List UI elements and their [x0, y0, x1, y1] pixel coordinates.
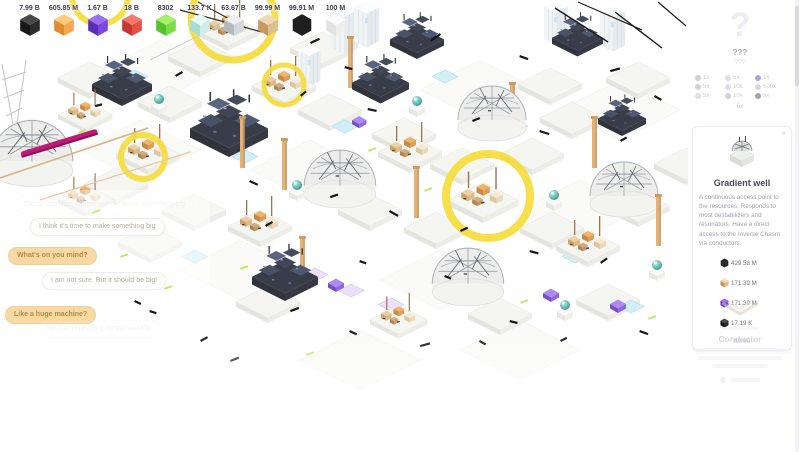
building-title: Gradient well [699, 178, 785, 188]
close-icon[interactable]: × [781, 129, 786, 138]
cost-value: 171.39 M [731, 280, 757, 287]
requirement-value: 1x [703, 75, 709, 81]
black-hexagon-icon [291, 13, 313, 42]
black-hexagon-icon [720, 255, 731, 273]
locked-item-footer: 5x [688, 104, 792, 110]
ghost-text-line [698, 356, 782, 360]
ghost-cost-row [688, 377, 792, 383]
resource-counter-crate-cube: 99.99 M [254, 5, 281, 42]
requirement-value: 5x [703, 84, 709, 90]
resource-bar: 7.99 B 605.85 M 1.67 B 18 B 8302 133.7 K… [16, 5, 349, 42]
requirement-icon [725, 84, 731, 90]
next-item-title: Conductor [688, 334, 792, 344]
red-cube-icon [121, 13, 143, 42]
ghost-text-line [731, 378, 761, 382]
requirement-icon [755, 93, 761, 99]
resource-counter-prism-cube: 133.7 K [186, 5, 213, 42]
requirement-item: 1x [695, 75, 725, 81]
requirement-icon [755, 84, 761, 90]
conductor-icon [718, 300, 762, 318]
requirement-value: 500x [763, 84, 776, 90]
chat-reply-option[interactable]: What's on you mind? [8, 247, 97, 265]
requirement-item: 10x [725, 93, 755, 99]
purple-cube-icon [87, 13, 109, 42]
resource-value: 7.99 B [19, 5, 40, 12]
resource-value: 63.67 B [221, 5, 246, 12]
requirement-icon [725, 75, 731, 81]
ghost-text-line [712, 364, 768, 368]
requirement-value: 5x [703, 93, 709, 99]
chat-bubble-npc: I am not sure. But it should be big! [42, 272, 166, 290]
resource-counter-green-cube: 8302 [152, 5, 179, 42]
requirement-item: 500x [755, 84, 785, 90]
panel-scrollbar[interactable] [795, 0, 799, 452]
black-cube-icon [19, 13, 41, 42]
requirement-icon [695, 93, 701, 99]
resource-value: 18 B [124, 5, 139, 12]
resource-counter-red-cube: 18 B [118, 5, 145, 42]
locked-item-card[interactable]: ? ??? ??? 1x 5x 1x 5x 10x 500x 5x 10x 5x… [688, 8, 792, 110]
cost-item: 429.58 M [720, 255, 764, 273]
locked-item-title: ??? [688, 48, 792, 57]
requirement-value: 5x [733, 75, 739, 81]
requirement-value: 10x [733, 93, 743, 99]
requirement-value: 1x [763, 75, 769, 81]
resource-value: 99.99 M [255, 5, 280, 12]
requirement-icon [695, 84, 701, 90]
build-side-panel: ? ??? ??? 1x 5x 1x 5x 10x 500x 5x 10x 5x… [688, 0, 800, 452]
resource-counter-orange-cube: 605.85 M [50, 5, 77, 42]
cost-value: 429.58 M [731, 260, 757, 267]
tan-cube-icon [720, 275, 731, 293]
requirement-item: 5x [695, 93, 725, 99]
resource-counter-purple-cube: 1.67 B [84, 5, 111, 42]
resource-value: 99.91 M [289, 5, 314, 12]
locked-item-subtitle: ??? [688, 60, 792, 66]
prism-cube-icon [189, 13, 211, 42]
scrollbar-thumb[interactable] [795, 6, 799, 86]
crate-cube-icon [257, 13, 279, 42]
resource-value: 605.85 M [49, 5, 78, 12]
resource-counter-black-hexagon: 99.91 M [288, 5, 315, 42]
requirement-value: 10x [733, 84, 743, 90]
resource-value: 8302 [158, 5, 174, 12]
requirement-icon [695, 75, 701, 81]
orange-cube-icon [53, 13, 75, 42]
resource-counter-white-cube: 100 M [322, 5, 349, 42]
chat-bubble-npc: The possibilities danger remind about so… [14, 196, 194, 214]
requirement-item: 1x [755, 75, 785, 81]
silver-cube-icon [223, 13, 245, 42]
requirement-item: 5x [725, 75, 755, 81]
resource-counter-silver-cube: 63.67 B [220, 5, 247, 42]
ghost-resource-icon [720, 377, 726, 383]
requirement-grid: 1x 5x 1x 5x 10x 500x 5x 10x 5x [692, 73, 788, 100]
requirement-icon [725, 93, 731, 99]
resource-value: 133.7 K [187, 5, 212, 12]
resource-value: 100 M [326, 5, 345, 12]
building-thumbnail [720, 135, 764, 171]
requirement-item: 5x [755, 93, 785, 99]
ghost-text-line [696, 348, 784, 352]
white-cube-icon [325, 13, 347, 42]
next-item-card[interactable]: Conductor [688, 300, 792, 383]
chat-bubble-npc: No, I am speaking metaphorically. [38, 320, 161, 338]
decorative-line [722, 327, 758, 330]
resource-counter-black-cube: 7.99 B [16, 5, 43, 42]
requirement-item: 10x [725, 84, 755, 90]
resource-value: 1.67 B [87, 5, 108, 12]
question-mark-icon: ? [688, 8, 792, 42]
requirement-icon [755, 75, 761, 81]
building-description: A continuous access point to the resourc… [699, 193, 785, 248]
green-cube-icon [155, 13, 177, 42]
chat-bubble-npc: I think it's time to make something big [30, 218, 165, 236]
requirement-value: 5x [763, 93, 769, 99]
cost-item: 171.39 M [720, 275, 764, 293]
requirement-item: 5x [695, 84, 725, 90]
